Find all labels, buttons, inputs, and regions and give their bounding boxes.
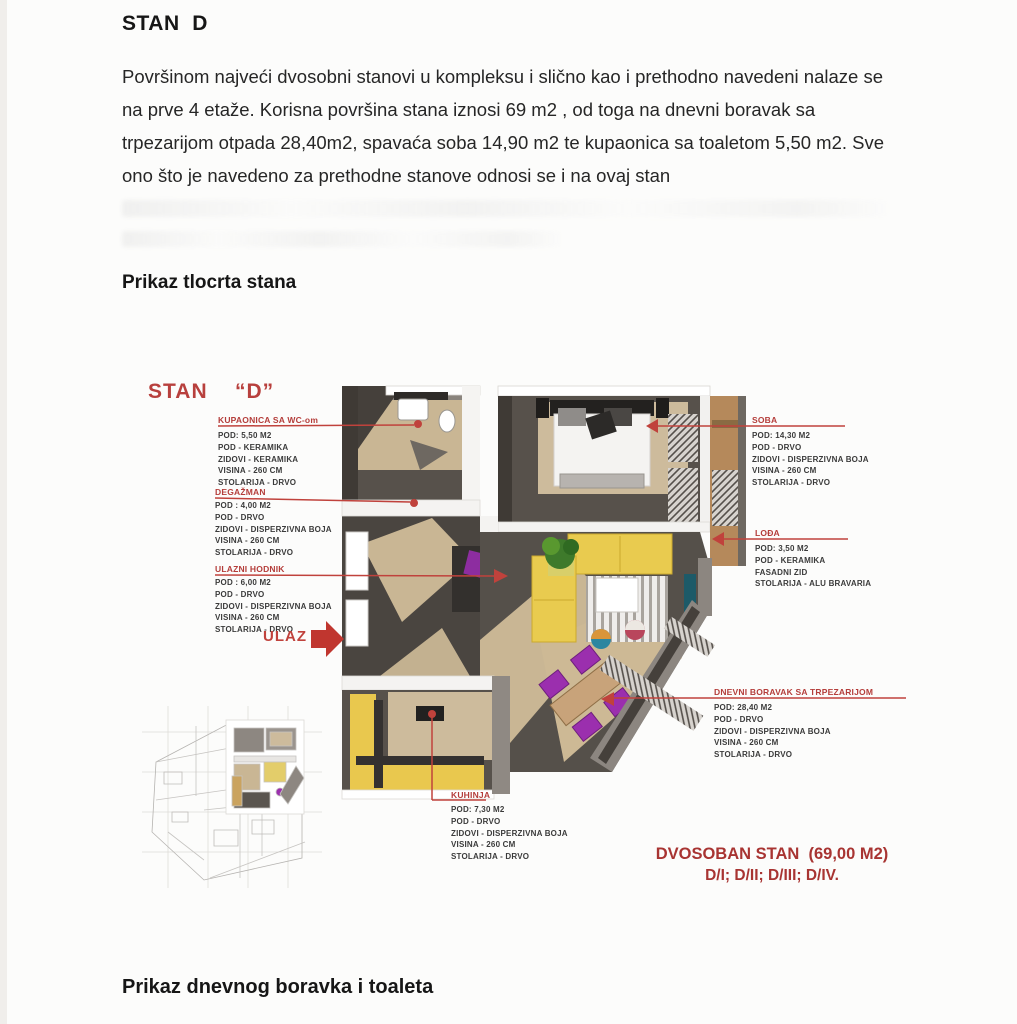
apartment-summary: DVOSOBAN STAN (69,00 M2) D/I; D/II; D/II…: [648, 845, 896, 885]
room-label-title: KUHINJA: [451, 790, 621, 800]
apartment-type: DVOSOBAN STAN (69,00 M2): [648, 845, 896, 864]
wardrobe: [668, 414, 698, 462]
room-label-title: DEGAŽMAN: [215, 487, 385, 497]
room-label-degazman: DEGAŽMAN POD : 4,00 M2 POD - DRVO ZIDOVI…: [215, 487, 385, 559]
room-label-title: LOĐA: [755, 528, 925, 538]
coffee-table: [596, 578, 638, 612]
bed: [554, 408, 650, 488]
room-label-dnevni-boravak: DNEVNI BORAVAK SA TRPEZARIJOM POD: 28,40…: [714, 687, 884, 761]
apartment-units: D/I; D/II; D/III; D/IV.: [648, 867, 896, 885]
living-area: [480, 532, 715, 772]
room-label-kupaonica: KUPAONICA SA WC-om POD: 5,50 M2 POD - KE…: [218, 415, 388, 489]
site-plan-thumbnail: [226, 720, 304, 814]
site-plan-sketch: [142, 706, 322, 888]
room-label-soba: SOBA POD: 14,30 M2 POD - DRVO ZIDOVI - D…: [752, 415, 922, 489]
room-label-title: DNEVNI BORAVAK SA TRPEZARIJOM: [714, 687, 884, 697]
kitchen-area: [342, 676, 510, 799]
room-label-ulazni-hodnik: ULAZNI HODNIK POD : 6,00 M2 POD - DRVO Z…: [215, 564, 385, 636]
room-label-title: ULAZNI HODNIK: [215, 564, 385, 574]
plan-title: STAN “D”: [148, 380, 274, 404]
room-label-title: KUPAONICA SA WC-om: [218, 415, 388, 425]
room-label-kuhinja: KUHINJA POD: 7,30 M2 POD - DRVO ZIDOVI -…: [451, 790, 621, 863]
room-label-title: SOBA: [752, 415, 922, 425]
entrance-label: ULAZ: [263, 628, 307, 645]
section-heading-living-toilet: Prikaz dnevnog boravka i toaleta: [122, 976, 433, 999]
apartment-plan: [342, 386, 746, 799]
bedroom-area: [498, 386, 710, 532]
room-label-lodja: LOĐA POD: 3,50 M2 POD - KERAMIKA FASADNI…: [755, 528, 925, 590]
